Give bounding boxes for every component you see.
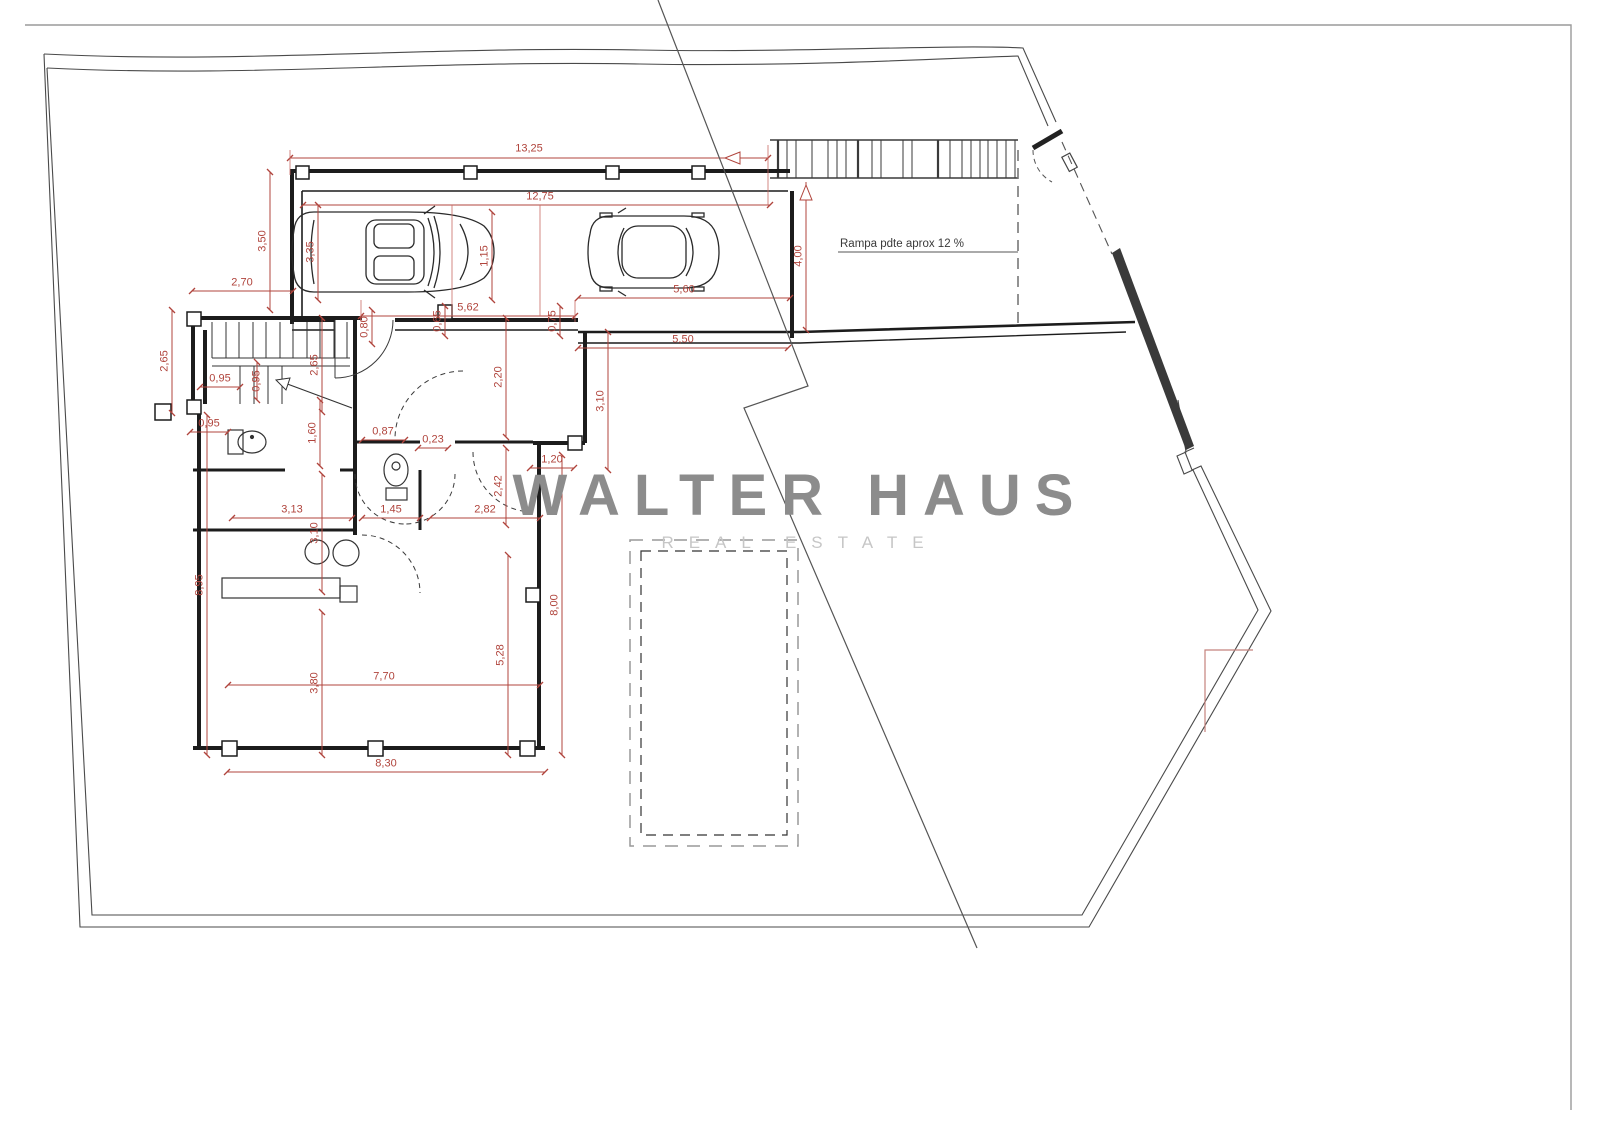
dimension-label: 8,95 <box>195 574 206 595</box>
washer-icons <box>305 540 359 566</box>
dimension-label: 1,60 <box>308 422 319 443</box>
toilet-icon <box>384 454 408 500</box>
floor-plan-drawing <box>0 0 1600 1131</box>
door-arcs <box>335 320 533 593</box>
dimension-label: 0,95 <box>198 419 219 430</box>
stairs-icon <box>212 322 352 408</box>
dimension-label: 12,75 <box>526 192 554 203</box>
ramp-hatch <box>770 140 1018 178</box>
dimension-label: 3,50 <box>258 230 269 251</box>
dimension-label: 2,42 <box>494 475 505 496</box>
dimension-label: 1,15 <box>480 245 491 266</box>
dimension-label: 0,95 <box>209 374 230 385</box>
walls <box>193 171 1135 750</box>
red-corner-annotation <box>1205 650 1253 732</box>
dimension-label: 5,62 <box>457 303 478 314</box>
pool-outline <box>630 540 798 846</box>
dimension-label: 2,82 <box>474 505 495 516</box>
dimension-label: 5,28 <box>496 644 507 665</box>
dimension-label: 2,20 <box>494 366 505 387</box>
dimension-label: 0,75 <box>548 310 559 331</box>
dimension-label: 3,10 <box>310 522 321 543</box>
dimension-label: 2,65 <box>310 354 321 375</box>
boundary-line <box>44 47 1271 927</box>
dimension-label: 3,80 <box>310 672 321 693</box>
dimension-label: 0,80 <box>360 316 371 337</box>
dimension-label: 2,65 <box>160 350 171 371</box>
dimension-label: 13,25 <box>515 144 543 155</box>
dimension-label: 0,65 <box>433 310 444 331</box>
dimension-label: 1,20 <box>541 455 562 466</box>
dimension-label: 5,60 <box>673 285 694 296</box>
dimension-label: 0,23 <box>422 435 443 446</box>
car-icon <box>588 208 719 296</box>
bathroom-fixtures <box>222 430 408 602</box>
kitchen-counter <box>222 578 357 602</box>
dimension-label: 5,50 <box>672 335 693 346</box>
dimension-label: 3,13 <box>281 505 302 516</box>
dimension-label: 0,95 <box>252 370 263 391</box>
dimension-label: 8,00 <box>550 594 561 615</box>
page-frame <box>25 25 1571 1110</box>
gate-icon <box>1033 131 1077 182</box>
dimension-label: 2,70 <box>231 278 252 289</box>
dimension-label: 1,45 <box>380 505 401 516</box>
dimension-label: 0,87 <box>372 427 393 438</box>
dimension-label: 3,10 <box>596 390 607 411</box>
cut-line <box>658 0 977 948</box>
ramp-label: Rampa pdte aprox 12 % <box>840 238 964 250</box>
dimension-label: 3,35 <box>306 241 317 262</box>
dimension-label: 7,70 <box>373 672 394 683</box>
dimension-label: 8,30 <box>375 759 396 770</box>
sink-icon <box>228 430 266 454</box>
dimension-label: 4,00 <box>794 245 805 266</box>
car-icon <box>292 206 494 298</box>
floor-plan: WALTER HAUS REAL ESTATE Rampa pdte aprox… <box>0 0 1600 1131</box>
